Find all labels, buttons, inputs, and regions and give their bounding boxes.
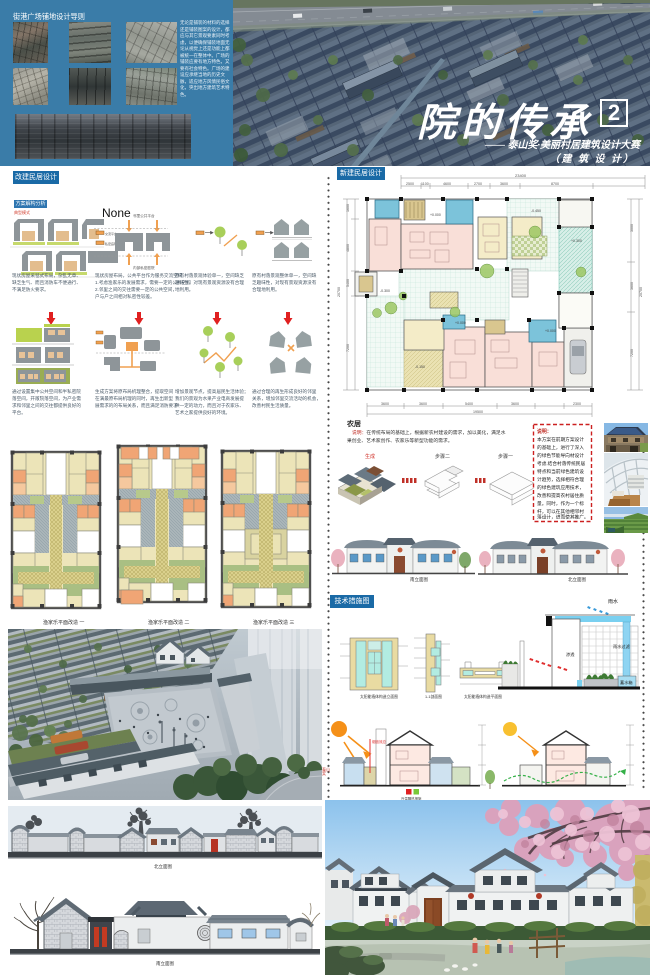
- svg-text:19500: 19500: [473, 410, 483, 414]
- svg-text:-0.150: -0.150: [415, 365, 425, 369]
- svg-text:3600: 3600: [500, 182, 508, 186]
- svg-text:雨水过滤: 雨水过滤: [613, 643, 631, 650]
- svg-text:渔家乐平面改造 三: 渔家乐平面改造 三: [253, 619, 294, 626]
- svg-text:7200: 7200: [630, 349, 634, 357]
- svg-text:-0.450: -0.450: [531, 209, 541, 213]
- svg-text:雨水: 雨水: [608, 598, 618, 605]
- svg-text:5400: 5400: [465, 402, 473, 406]
- svg-text:原有村落景观体验单一，空间缺乏趣味性，对现有景观资源没有合理: 原有村落景观体验单一，空间缺乏趣味性，对现有景观资源没有合理地利用。: [175, 272, 244, 293]
- svg-text:说明：: 说明：: [537, 428, 552, 435]
- svg-text:北立面图: 北立面图: [568, 576, 586, 583]
- svg-text:5400: 5400: [346, 279, 350, 287]
- svg-text:20700: 20700: [337, 287, 341, 297]
- svg-text:+0.300: +0.300: [571, 239, 582, 243]
- svg-text:7200: 7200: [346, 344, 350, 352]
- svg-text:通过合理的再生形成良好的邻里关系，增加邻里交流活动的机会，改: 通过合理的再生形成良好的邻里关系，增加邻里交流活动的机会，改善村民生活质量。: [252, 388, 321, 409]
- svg-text:3600: 3600: [630, 282, 634, 290]
- svg-text:+0.000: +0.000: [430, 213, 441, 217]
- svg-text:-0.300: -0.300: [380, 289, 390, 293]
- svg-text:4800: 4800: [346, 244, 350, 252]
- svg-text:步骤二: 步骤二: [435, 453, 450, 460]
- svg-text:现状房屋采毯式布局，杂乱无章、缺乏生气、而且消防车不便通行、: 现状房屋采毯式布局，杂乱无章、缺乏生气、而且消防车不便通行、不满足防火要求。: [12, 272, 81, 293]
- svg-text:增加景观节点，提高居民生活体验；我们的景观为水果产业电商发展: 增加景观节点，提高居民生活体验；我们的景观为水果产业电商发展提供一定的动力，而且…: [175, 388, 249, 416]
- svg-text:太阳能墙体构造平面图: 太阳能墙体构造平面图: [464, 694, 502, 699]
- svg-text:3600: 3600: [511, 402, 519, 406]
- svg-text:2500: 2500: [406, 182, 414, 186]
- svg-text:3000: 3000: [630, 224, 634, 232]
- svg-text:渗透: 渗透: [566, 651, 575, 658]
- svg-text:农居: 农居: [346, 419, 361, 428]
- svg-text:通过设置集中公共空间和半私密院落空间，开敞院落空间，为产业需: 通过设置集中公共空间和半私密院落空间，开敞院落空间，为产业需求和邻里之间的交往都…: [12, 388, 81, 416]
- svg-text:说明：在传统布局的基础上，根据新农村建设的需求，加以美化，满: 说明：在传统布局的基础上，根据新农村建设的需求，加以美化，满足水果创业、艺术家创…: [347, 429, 506, 444]
- svg-text:南立面图: 南立面图: [410, 576, 428, 583]
- svg-text:渔家乐平面改造 二: 渔家乐平面改造 二: [148, 619, 189, 626]
- svg-text:2300: 2300: [573, 402, 581, 406]
- svg-text:None: None: [102, 206, 131, 220]
- svg-text:2700: 2700: [474, 182, 482, 186]
- svg-text:南立面图: 南立面图: [156, 960, 174, 967]
- svg-text:蓄水箱: 蓄水箱: [620, 679, 633, 686]
- svg-text:内部私密庭院: 内部私密庭院: [133, 265, 155, 270]
- svg-text:渔家乐平面改造 一: 渔家乐平面改造 一: [43, 619, 84, 626]
- svg-text:4600: 4600: [443, 182, 451, 186]
- svg-text:步骤一: 步骤一: [498, 453, 513, 460]
- svg-text:北立面图: 北立面图: [154, 863, 172, 870]
- svg-text:23400: 23400: [515, 173, 527, 178]
- svg-text:太阳能墙体构造立面图: 太阳能墙体构造立面图: [360, 694, 398, 699]
- svg-text:+0.000: +0.000: [455, 321, 466, 325]
- svg-text:1100: 1100: [421, 182, 429, 186]
- svg-text:+0.000: +0.000: [545, 329, 556, 333]
- svg-text:烟囱效应: 烟囱效应: [372, 739, 386, 744]
- svg-text:1-1剖面图: 1-1剖面图: [425, 694, 442, 699]
- svg-text:生成: 生成: [365, 453, 375, 460]
- svg-text:邻里公共平台: 邻里公共平台: [133, 213, 155, 218]
- svg-text:20700: 20700: [639, 287, 643, 297]
- svg-text:8700: 8700: [551, 182, 559, 186]
- svg-text:生成方案将原布局机理整合，提取空间在满最原布局机理的同时，再: 生成方案将原布局机理整合，提取空间在满最原布局机理的同时，再生出新型展需求的的布…: [95, 388, 178, 409]
- svg-text:3600: 3600: [381, 402, 389, 406]
- svg-text:原有村落景观整体单一，空间缺乏趣味性，对现有景观资源没有合理: 原有村落景观整体单一，空间缺乏趣味性，对现有景观资源没有合理地利用。: [252, 272, 317, 293]
- svg-text:1600: 1600: [346, 204, 350, 212]
- svg-text:3600: 3600: [419, 402, 427, 406]
